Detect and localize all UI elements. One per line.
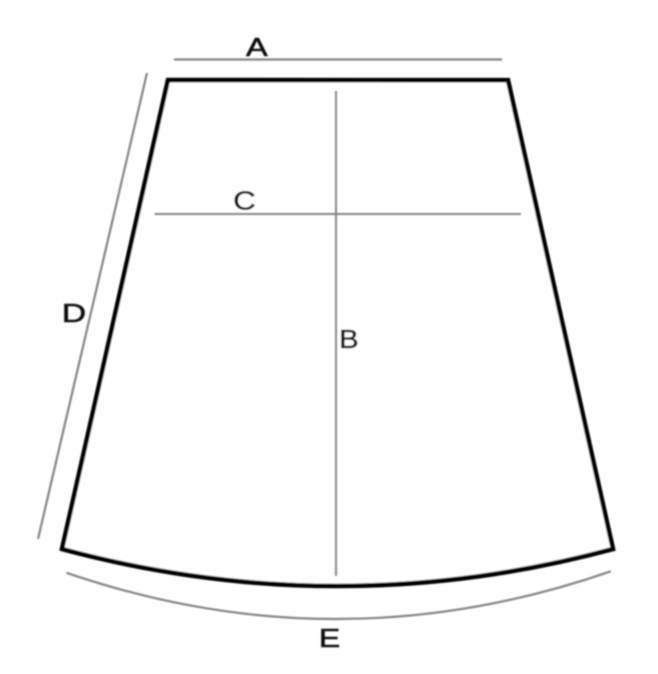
svg-text:B: B	[339, 324, 359, 354]
svg-text:D: D	[62, 298, 86, 328]
svg-text:E: E	[319, 623, 340, 653]
svg-text:C: C	[233, 186, 256, 216]
svg-text:A: A	[246, 32, 269, 62]
